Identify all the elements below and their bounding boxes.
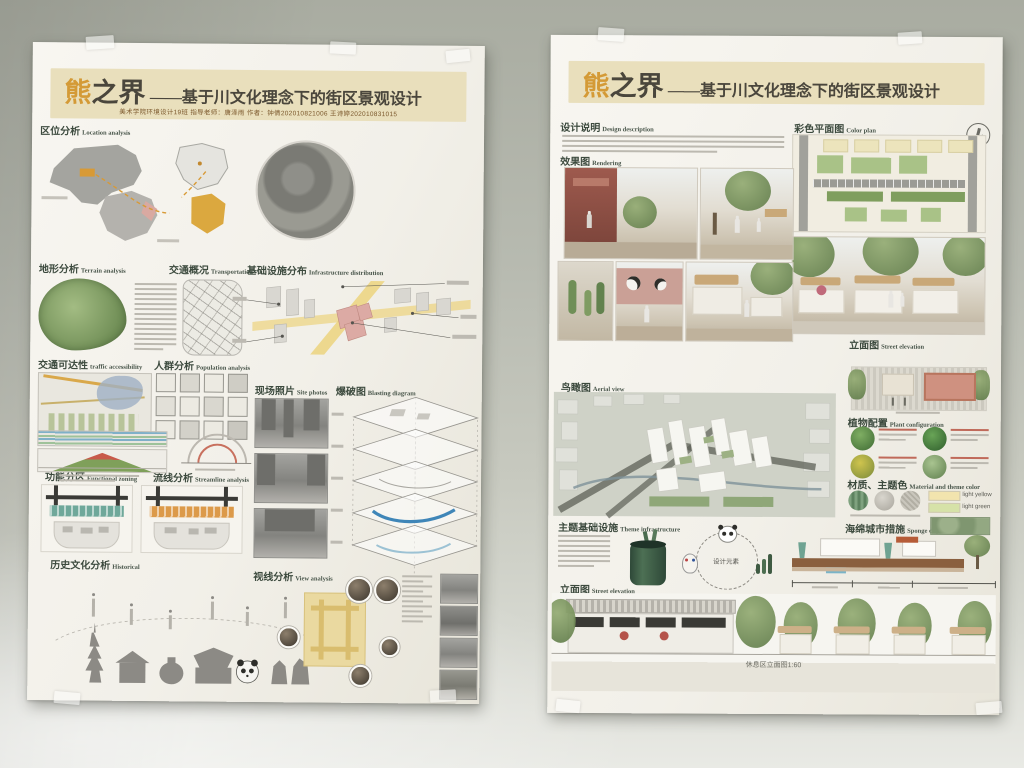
tape-strip: [330, 41, 357, 54]
title-dash: ——: [668, 82, 700, 99]
plant-photo-2: [923, 427, 947, 451]
streamline-plan: [140, 485, 243, 554]
terrain-text-column: [134, 283, 177, 353]
site-photo-1: [254, 398, 328, 449]
site-photo-3: [253, 508, 327, 559]
plant-photo-4: [922, 455, 946, 479]
view-photo-1: [346, 577, 372, 603]
bottom-street-elevation: 休息区立面图1:60: [551, 593, 996, 693]
title-rest: 之界: [609, 71, 663, 101]
zoning-plan: [40, 484, 133, 553]
view-photo-3: [278, 626, 300, 648]
color-plan-image: [792, 134, 987, 233]
plant-notes-1: [879, 429, 917, 444]
panda-icon: [718, 526, 737, 543]
title-subtitle: 基于川文化理念下的街区景观设计: [700, 83, 940, 101]
edge-photo-1: [440, 574, 478, 604]
plant-notes-3: [878, 457, 916, 472]
street-elevation-render: [791, 236, 986, 335]
blasting-exploded-diagram: [328, 397, 480, 574]
infra-notes: [558, 535, 610, 570]
sunpath-arc-chart: [181, 429, 251, 472]
render-street-scene: [564, 167, 698, 260]
label-transport: 交通概况Transportation: [169, 261, 253, 278]
material-photo-washed-stone: [874, 491, 894, 511]
tape-strip: [598, 27, 625, 42]
view-photo-5: [349, 665, 371, 687]
culture-wall-elevation: [851, 366, 987, 411]
infrastructure-axon-diagram: [244, 276, 479, 356]
label-site-photos: 现场照片Site photos: [255, 382, 328, 399]
edge-photo-3: [439, 638, 477, 668]
label-location: 区位分析Location analysis: [40, 122, 130, 139]
satellite-photo: [255, 140, 356, 241]
edge-photo-2: [440, 606, 478, 636]
label-terrain: 地形分析Terrain analysis: [39, 260, 126, 277]
left-title-band: 熊之界 ——基于川文化理念下的街区景观设计 美术学院环境设计19班 指导老师：唐…: [50, 68, 466, 122]
material-sample-green: [930, 517, 990, 535]
view-photo-2: [374, 577, 400, 603]
label-accessibility: 交通可达性traffic accessibility: [38, 356, 142, 373]
swatch-light-green: [928, 503, 960, 513]
material-captions: [850, 514, 920, 519]
title-dash: ——: [150, 89, 182, 106]
render-panda-wall-scene: [615, 261, 683, 341]
swatch-light-yellow-label: light yellow: [962, 492, 991, 498]
tape-strip: [445, 49, 470, 63]
label-description: 设计说明Design description: [560, 119, 654, 135]
terrain-map: [38, 278, 127, 351]
render-market-scene: [685, 262, 793, 343]
view-notes-list: [402, 575, 432, 625]
label-population: 人群分析Population analysis: [154, 357, 250, 374]
render-cactus-scene: [557, 261, 613, 341]
sponge-city-diagram: [792, 534, 996, 593]
tape-strip: [86, 35, 115, 50]
plant-notes-4: [950, 457, 988, 472]
panda-illustration: [236, 659, 258, 683]
tape-strip: [555, 699, 580, 713]
transport-map: [182, 279, 243, 356]
title-subtitle: 基于川文化理念下的街区景观设计: [182, 89, 422, 108]
tape-strip: [430, 689, 457, 702]
bottom-elevation-caption: 休息区立面图1:60: [551, 659, 995, 671]
climate-strip-chart: [37, 430, 167, 447]
plant-notes-2: [951, 429, 989, 444]
description-paragraph: [562, 135, 784, 156]
tape-strip: [976, 701, 1003, 715]
climate-captions: [59, 474, 139, 485]
district-map: [191, 193, 225, 233]
view-photo-4: [380, 637, 400, 657]
plant-photo-1: [851, 426, 875, 450]
opera-mask-icon: [682, 554, 698, 574]
view-analysis-plan: [303, 592, 366, 667]
tape-strip: [898, 31, 923, 45]
title-accent-char: 熊: [64, 77, 91, 107]
title-rest: 之界: [91, 78, 145, 108]
climate-mountain-chart: [37, 448, 167, 473]
swatch-light-yellow: [928, 491, 960, 501]
right-title-band: 熊之界 ——基于川文化理念下的街区景观设计: [568, 61, 984, 105]
render-plaza-scene: [700, 168, 794, 260]
cycle-center-label: 设计元素: [706, 556, 746, 566]
label-theme-infra: 主题基础设施Theme infrastructure: [558, 519, 680, 536]
material-photo-texture-paint: [900, 491, 920, 511]
location-maps-diagram: [39, 138, 252, 252]
left-poster: 熊之界 ——基于川文化理念下的街区景观设计 美术学院环境设计19班 指导老师：唐…: [27, 42, 485, 704]
bamboo-bin-illustration: [628, 535, 668, 587]
label-elevation-right: 立面图Street elevation: [849, 336, 924, 352]
aerial-view-render: [553, 392, 836, 517]
bamboo-icon: [756, 552, 774, 574]
material-photo-bamboo: [848, 490, 868, 510]
design-elements-cycle-diagram: 设计元素: [682, 530, 782, 595]
swatch-light-green-label: light green: [962, 504, 990, 510]
site-photo-2: [254, 453, 328, 504]
title-accent-char: 熊: [582, 71, 609, 101]
right-poster: 熊之界 ——基于川文化理念下的街区景观设计 设计说明Design descrip…: [547, 35, 1003, 715]
province-outline-map: [176, 143, 228, 189]
photo-of-posters-on-wall: 熊之界 ——基于川文化理念下的街区景观设计 美术学院环境设计19班 指导老师：唐…: [0, 0, 1024, 768]
tape-strip: [54, 691, 81, 705]
plant-photo-3: [850, 454, 874, 478]
